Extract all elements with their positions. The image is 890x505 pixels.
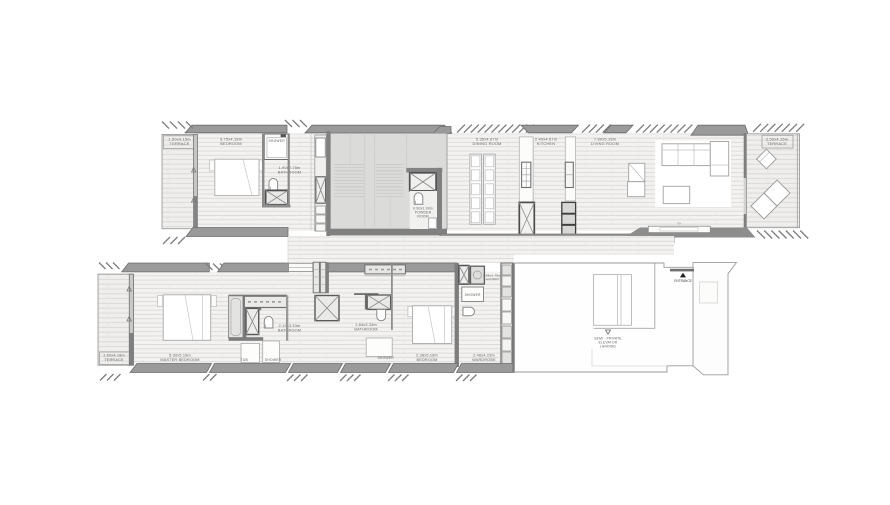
svg-text:1.50x4.15mTERRACE: 1.50x4.15mTERRACE — [168, 137, 190, 147]
svg-text:2.19x3.33mBATHROOM: 2.19x3.33mBATHROOM — [278, 324, 301, 332]
svg-text:7.80x5.18mLIVING ROOM: 7.80x5.18mLIVING ROOM — [591, 137, 619, 147]
svg-text:TUB: TUB — [241, 358, 249, 362]
svg-text:SHOWER: SHOWER — [377, 356, 394, 360]
svg-text:2.38x5.18mBEDROOM: 2.38x5.18mBEDROOM — [416, 354, 438, 362]
svg-text:SHOWER: SHOWER — [465, 293, 481, 297]
svg-text:ENTRANCE: ENTRANCE — [674, 279, 692, 283]
svg-text:SHOWER: SHOWER — [265, 358, 282, 362]
svg-text:1.60x4.18mTERRACE: 1.60x4.18mTERRACE — [103, 354, 125, 362]
svg-text:2.50x4.15mTERRACE: 2.50x4.15mTERRACE — [766, 137, 788, 147]
svg-text:2.46x4.23mWARDROBE: 2.46x4.23mWARDROBE — [472, 354, 496, 362]
svg-text:2.40x4.67mKITCHEN: 2.40x4.67mKITCHEN — [535, 137, 557, 147]
svg-text:1.84x3.33mBATHROOM: 1.84x3.33mBATHROOM — [354, 323, 377, 331]
svg-text:SHOWER: SHOWER — [268, 139, 285, 143]
svg-text:1.96x1.70mLAUNDRY: 1.96x1.70mLAUNDRY — [483, 274, 501, 282]
svg-text:3.75x4.18mBEDROOM: 3.75x4.18mBEDROOM — [220, 137, 242, 147]
svg-text:TV: TV — [677, 222, 681, 226]
svg-text:5.35x4.67mDINING ROOM: 5.35x4.67mDINING ROOM — [472, 137, 501, 147]
